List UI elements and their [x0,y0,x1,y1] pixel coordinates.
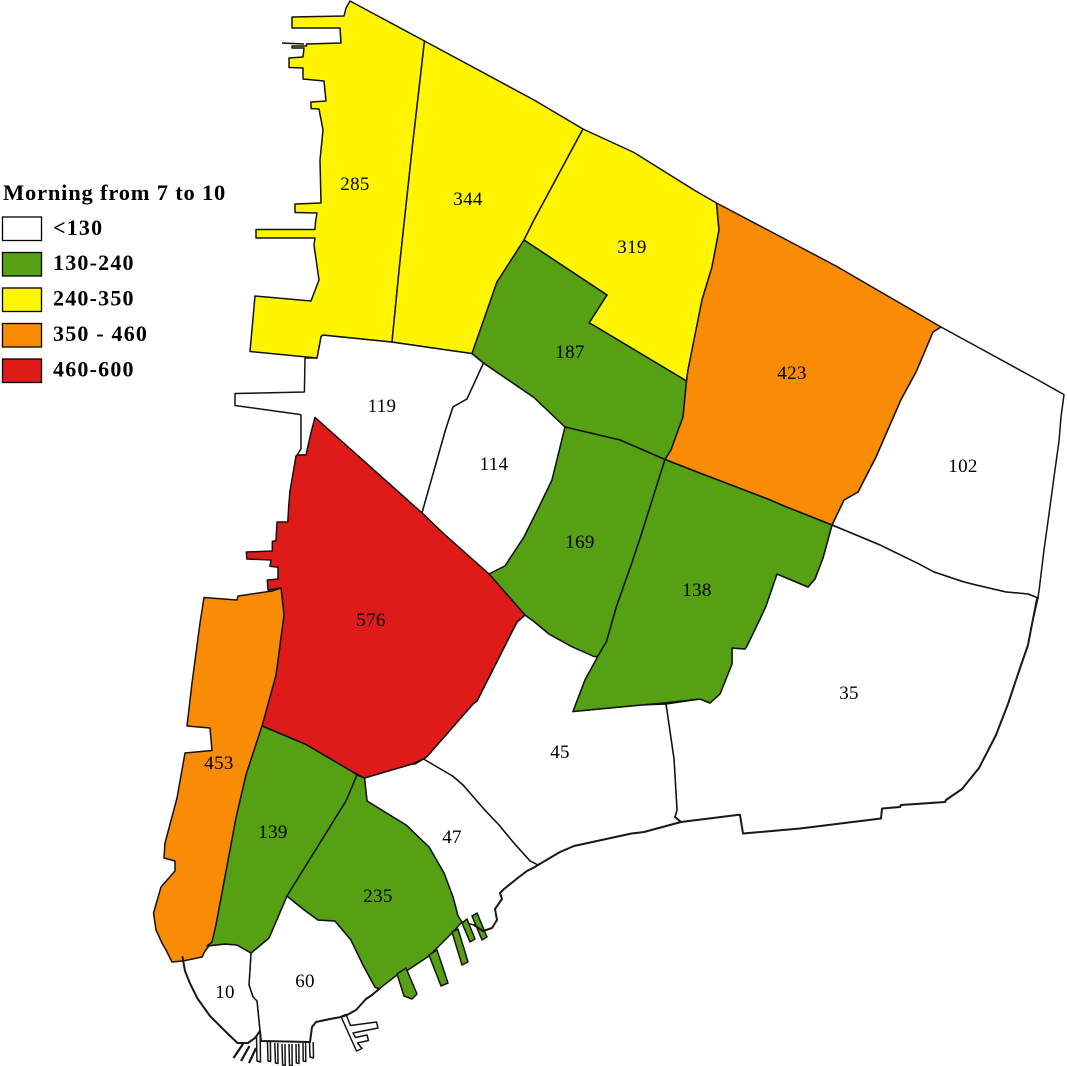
svg-text:10: 10 [215,982,235,1003]
svg-text:45: 45 [550,742,570,763]
svg-text:319: 319 [617,237,646,258]
svg-text:119: 119 [368,396,397,417]
svg-text:576: 576 [356,610,385,631]
svg-text:138: 138 [682,580,711,601]
svg-text:344: 344 [453,189,483,210]
svg-text:130-240: 130-240 [53,250,135,275]
svg-text:240-350: 240-350 [53,286,135,311]
svg-text:47: 47 [442,827,462,848]
svg-text:187: 187 [555,342,584,363]
svg-text:102: 102 [948,456,977,477]
svg-text:453: 453 [204,753,233,774]
svg-text:139: 139 [258,822,287,843]
svg-text:169: 169 [565,532,594,553]
svg-text:350 - 460: 350 - 460 [53,321,148,346]
svg-text:114: 114 [480,454,509,475]
svg-text:<130: <130 [53,215,103,240]
svg-text:285: 285 [340,174,369,195]
svg-text:35: 35 [839,683,859,704]
svg-text:460-600: 460-600 [53,357,135,382]
svg-text:423: 423 [777,363,806,384]
svg-text:235: 235 [363,886,392,907]
svg-text:60: 60 [295,971,315,992]
svg-text:Morning from 7 to 10: Morning from 7 to 10 [3,180,226,205]
